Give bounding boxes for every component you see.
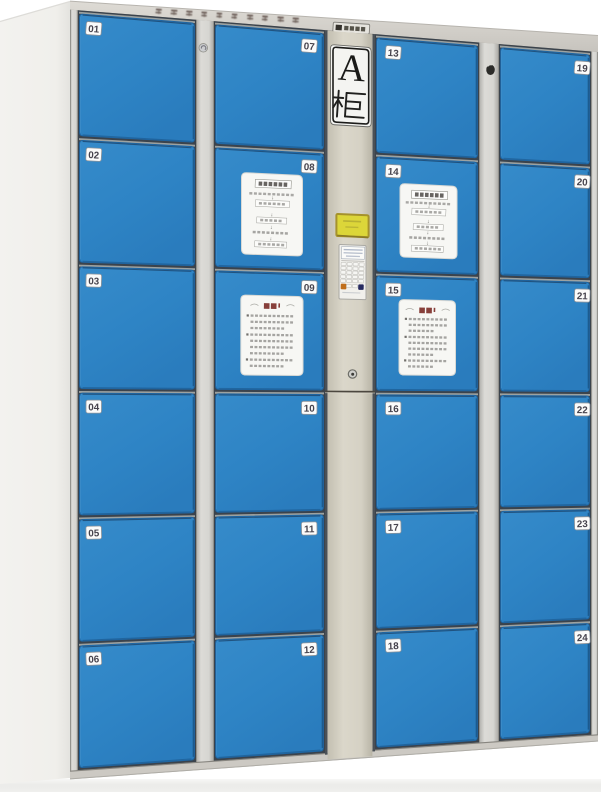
- svg-text:↓: ↓: [426, 230, 429, 236]
- svg-text:↓: ↓: [270, 225, 273, 231]
- svg-text:23: 23: [577, 519, 589, 530]
- svg-text:15: 15: [388, 285, 400, 296]
- svg-text:21: 21: [577, 291, 589, 302]
- svg-text:09: 09: [304, 283, 316, 294]
- svg-text:↓: ↓: [270, 212, 273, 218]
- svg-text:↓: ↓: [269, 236, 272, 242]
- svg-text:16: 16: [388, 404, 399, 415]
- svg-text:06: 06: [88, 654, 100, 666]
- svg-text:19: 19: [576, 63, 588, 75]
- svg-text:20: 20: [576, 177, 588, 189]
- svg-text:04: 04: [88, 402, 99, 413]
- svg-text:A: A: [337, 47, 368, 91]
- svg-text:12: 12: [304, 645, 316, 657]
- svg-text:02: 02: [88, 150, 100, 162]
- svg-text:14: 14: [387, 167, 399, 179]
- svg-text:↓: ↓: [271, 195, 274, 201]
- svg-text:07: 07: [303, 41, 315, 53]
- svg-text:10: 10: [304, 404, 315, 415]
- svg-text:11: 11: [304, 524, 315, 535]
- svg-text:↓: ↓: [428, 204, 431, 210]
- svg-text:↓: ↓: [426, 241, 429, 247]
- svg-text:22: 22: [577, 405, 588, 416]
- svg-text:13: 13: [387, 48, 399, 60]
- svg-text:01: 01: [88, 24, 100, 36]
- svg-text:18: 18: [388, 641, 400, 653]
- svg-text:17: 17: [388, 523, 400, 534]
- svg-text:05: 05: [88, 528, 100, 539]
- svg-text:08: 08: [303, 162, 315, 174]
- svg-text:24: 24: [577, 633, 589, 645]
- svg-text:↓: ↓: [427, 219, 430, 225]
- svg-text:03: 03: [88, 276, 100, 287]
